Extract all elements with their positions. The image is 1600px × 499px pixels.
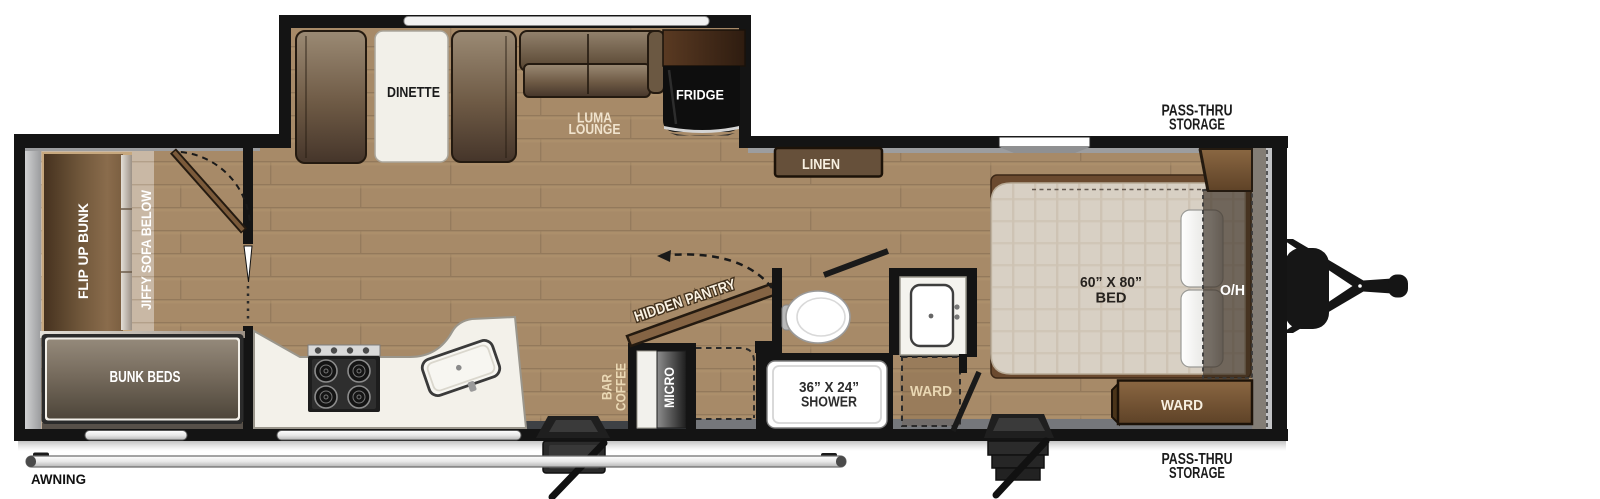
svg-text:SHOWER: SHOWER	[801, 395, 857, 411]
svg-text:MICRO: MICRO	[662, 367, 677, 408]
svg-text:JIFFY SOFA BELOW: JIFFY SOFA BELOW	[138, 189, 154, 310]
svg-text:AWNING: AWNING	[31, 472, 86, 487]
svg-text:BAR: BAR	[599, 374, 615, 400]
svg-text:60” X 80”: 60” X 80”	[1080, 275, 1142, 291]
svg-text:FLIP UP BUNK: FLIP UP BUNK	[75, 203, 91, 299]
svg-text:STORAGE: STORAGE	[1169, 117, 1225, 134]
svg-text:STORAGE: STORAGE	[1169, 465, 1225, 482]
svg-text:BED: BED	[1096, 291, 1127, 307]
svg-text:DINETTE: DINETTE	[387, 85, 440, 101]
svg-text:O/H: O/H	[1220, 283, 1245, 299]
svg-text:FRIDGE: FRIDGE	[676, 88, 724, 103]
svg-text:WARD: WARD	[910, 383, 952, 400]
svg-text:WARD: WARD	[1161, 397, 1203, 414]
svg-text:LINEN: LINEN	[802, 157, 840, 173]
svg-text:COFFEE: COFFEE	[613, 363, 629, 411]
svg-text:BUNK BEDS: BUNK BEDS	[110, 369, 181, 386]
svg-text:LOUNGE: LOUNGE	[569, 122, 621, 138]
